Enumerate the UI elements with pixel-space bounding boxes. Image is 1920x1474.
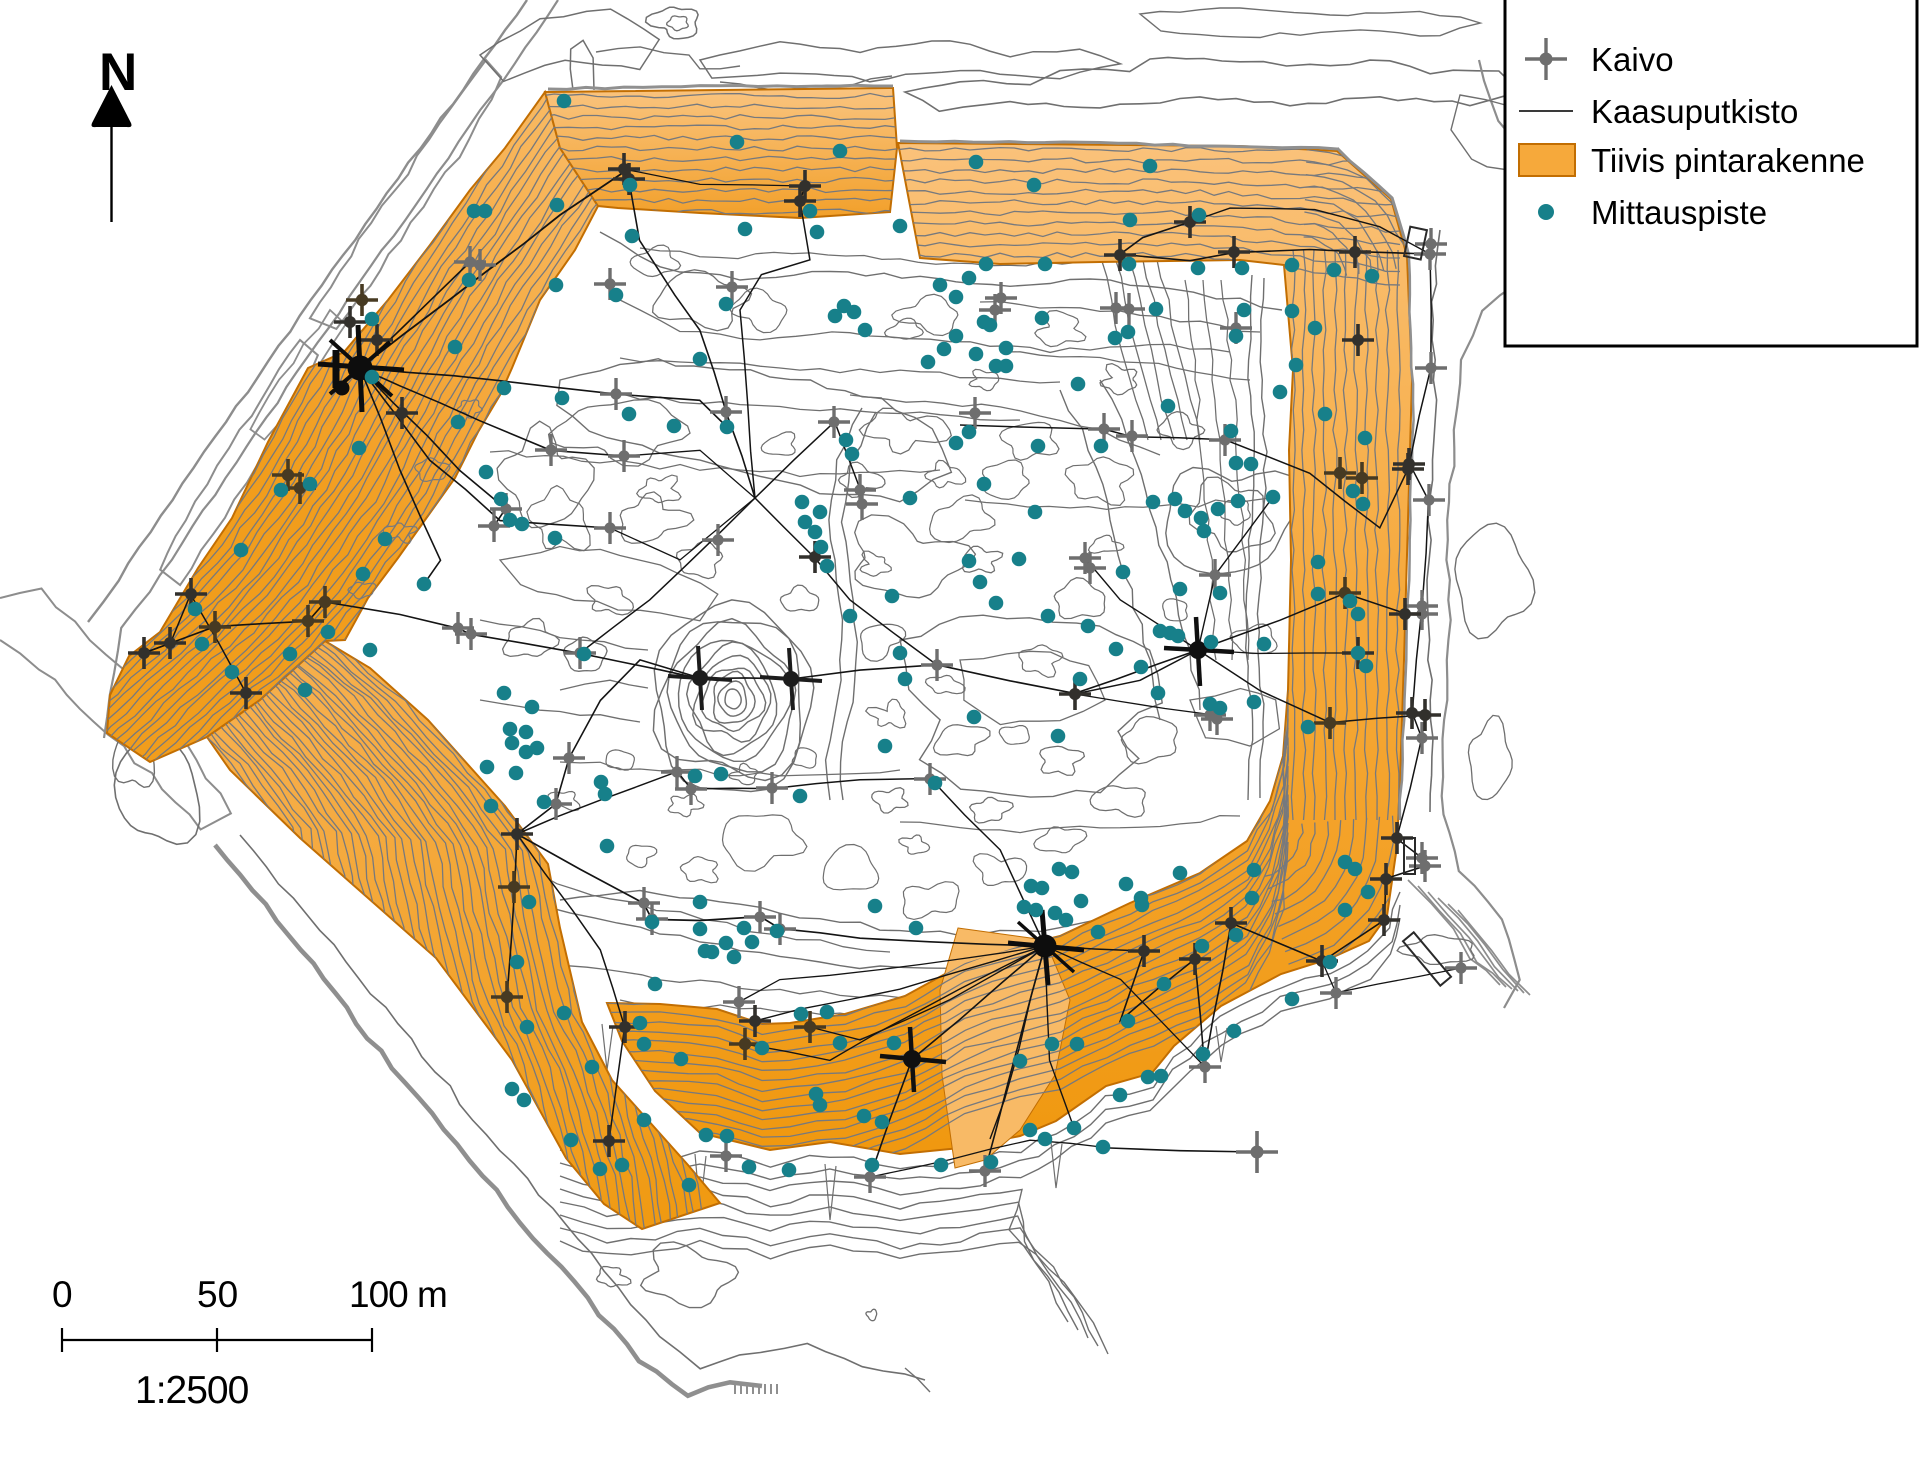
svg-text:50: 50	[197, 1274, 238, 1315]
svg-text:Kaasuputkisto: Kaasuputkisto	[1591, 93, 1798, 130]
svg-text:Tiivis pintarakenne: Tiivis pintarakenne	[1591, 142, 1865, 179]
svg-text:0: 0	[52, 1274, 73, 1315]
svg-text:Kaivo: Kaivo	[1591, 41, 1674, 78]
svg-text:N: N	[99, 43, 137, 102]
svg-text:100 m: 100 m	[349, 1274, 447, 1315]
svg-text:Mittauspiste: Mittauspiste	[1591, 194, 1767, 231]
svg-text:1:2500: 1:2500	[135, 1369, 249, 1412]
